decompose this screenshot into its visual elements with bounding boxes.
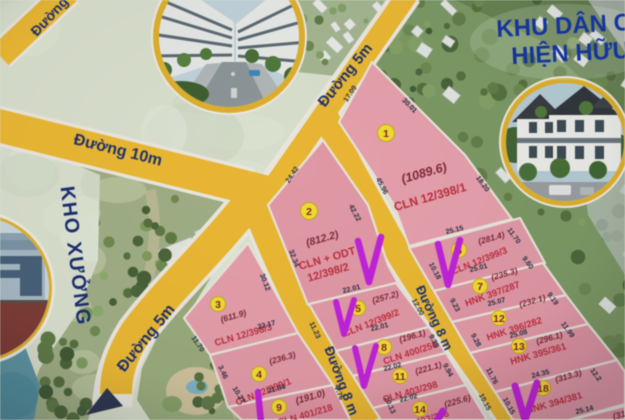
svg-text:11: 11 [394,371,405,383]
svg-text:5: 5 [355,303,361,315]
svg-text:1: 1 [383,128,389,140]
svg-text:2: 2 [306,206,312,218]
svg-text:12: 12 [493,313,505,325]
svg-text:4: 4 [256,369,262,381]
svg-text:13: 13 [513,341,525,353]
svg-text:3: 3 [215,299,221,311]
svg-text:8: 8 [381,342,387,354]
svg-text:9: 9 [276,402,282,414]
